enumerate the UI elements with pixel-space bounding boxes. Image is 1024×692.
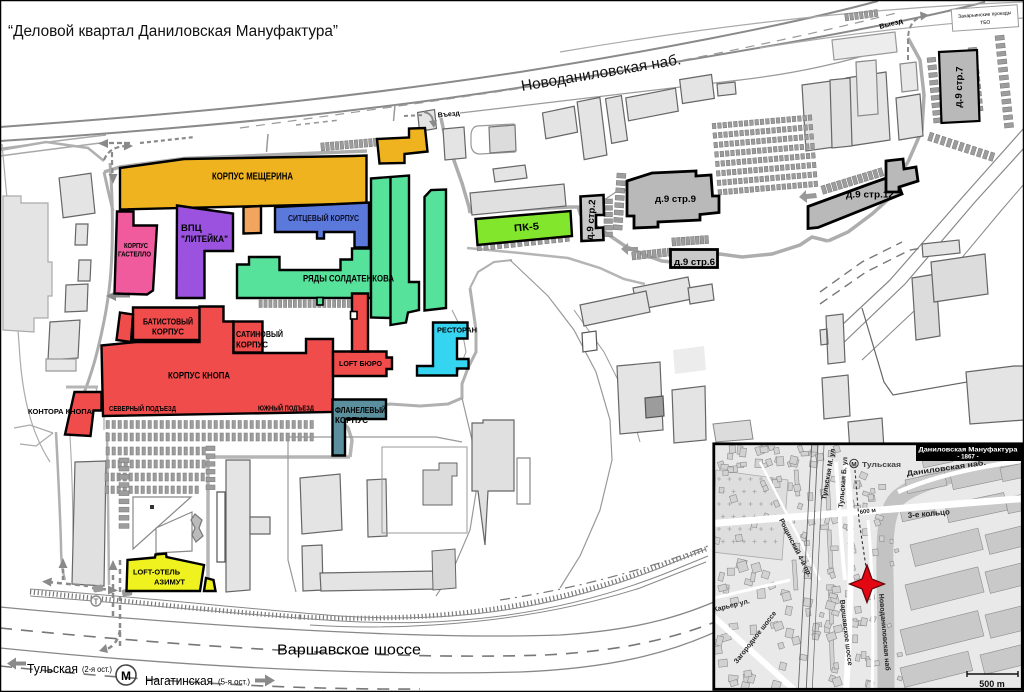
svg-text:М: М — [851, 462, 856, 469]
svg-text:ФЛАНЕЛЕВЫЙ: ФЛАНЕЛЕВЫЙ — [335, 406, 386, 415]
svg-text:СИТЦЕВЫЙ КОРПУС: СИТЦЕВЫЙ КОРПУС — [288, 212, 359, 223]
svg-text:Нагатинская: Нагатинская — [145, 673, 213, 688]
svg-text:ЮЖНЫЙ ПОДЪЕЗД: ЮЖНЫЙ ПОДЪЕЗД — [258, 404, 314, 413]
svg-text:“Деловой квартал Даниловская М: “Деловой квартал Даниловская Мануфактура… — [8, 23, 338, 40]
svg-text:КОРПУС: КОРПУС — [236, 341, 268, 350]
svg-text:КОРПУС: КОРПУС — [335, 416, 368, 425]
svg-text:Т: Т — [94, 598, 99, 607]
svg-text:д.9 стр.6: д.9 стр.6 — [674, 257, 715, 268]
svg-text:РЕСТОРАН: РЕСТОРАН — [437, 326, 477, 335]
svg-text:д.9 стр.7: д.9 стр.7 — [953, 66, 965, 107]
svg-text:(5-я ост.): (5-я ост.) — [218, 678, 250, 687]
svg-text:д.9 стр.12: д.9 стр.12 — [846, 190, 894, 201]
svg-text:КОРПУС КНОПА: КОРПУС КНОПА — [168, 371, 230, 382]
svg-text:ТБО: ТБО — [980, 20, 991, 27]
svg-text:- 1867 -: - 1867 - — [957, 454, 978, 461]
svg-text:LОFT БЮРО: LОFT БЮРО — [339, 359, 382, 368]
svg-text:д.9 стр.9: д.9 стр.9 — [655, 194, 696, 205]
svg-text:КОРПУС МЕЩЕРИНА: КОРПУС МЕЩЕРИНА — [212, 172, 293, 183]
svg-text:"ЛИТЕЙКА": "ЛИТЕЙКА" — [181, 233, 228, 245]
svg-text:БАТИСТОВЫЙ: БАТИСТОВЫЙ — [143, 318, 193, 327]
svg-text:ВПЦ: ВПЦ — [181, 223, 202, 234]
svg-text:СЕВЕРНЫЙ ПОДЪЕЗД: СЕВЕРНЫЙ ПОДЪЕЗД — [109, 404, 176, 413]
svg-text:Тульская: Тульская — [862, 460, 901, 469]
svg-text:КОНТОРА КНОПА: КОНТОРА КНОПА — [28, 409, 92, 416]
svg-text:М: М — [121, 669, 131, 683]
svg-text:ГАСТЕЛЛО: ГАСТЕЛЛО — [118, 252, 151, 259]
svg-text:КОРПУС: КОРПУС — [152, 328, 184, 337]
svg-text:500 m: 500 m — [979, 679, 1005, 689]
svg-text:АЗИМУТ: АЗИМУТ — [154, 578, 185, 587]
svg-text:(2-я ост.): (2-я ост.) — [82, 665, 112, 674]
svg-text:Даниловская Мануфактура: Даниловская Мануфактура — [919, 447, 1019, 454]
svg-text:LОFT-ОТЕЛЬ: LОFT-ОТЕЛЬ — [133, 568, 181, 577]
svg-text:ПК-5: ПК-5 — [514, 221, 540, 234]
svg-text:Тульская: Тульская — [27, 661, 78, 676]
svg-text:РЯДЫ СОЛДАТЕНКОВА: РЯДЫ СОЛДАТЕНКОВА — [303, 274, 394, 284]
svg-text:КОРПУС: КОРПУС — [124, 243, 148, 250]
svg-text:Варшавское шоссе: Варшавское шоссе — [277, 642, 421, 659]
svg-text:САТИНОВЫЙ: САТИНОВЫЙ — [236, 330, 283, 339]
